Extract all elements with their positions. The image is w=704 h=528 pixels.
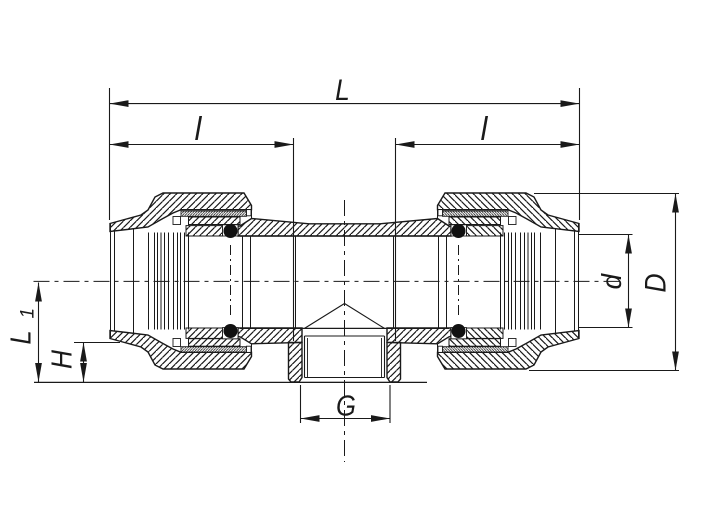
svg-text:l: l <box>481 110 489 147</box>
svg-text:G: G <box>336 389 356 422</box>
svg-text:D: D <box>638 273 672 292</box>
svg-text:L: L <box>4 330 37 344</box>
svg-text:L: L <box>335 72 350 106</box>
svg-text:l: l <box>195 110 203 147</box>
svg-text:H: H <box>45 350 77 369</box>
svg-text:1: 1 <box>18 308 39 319</box>
